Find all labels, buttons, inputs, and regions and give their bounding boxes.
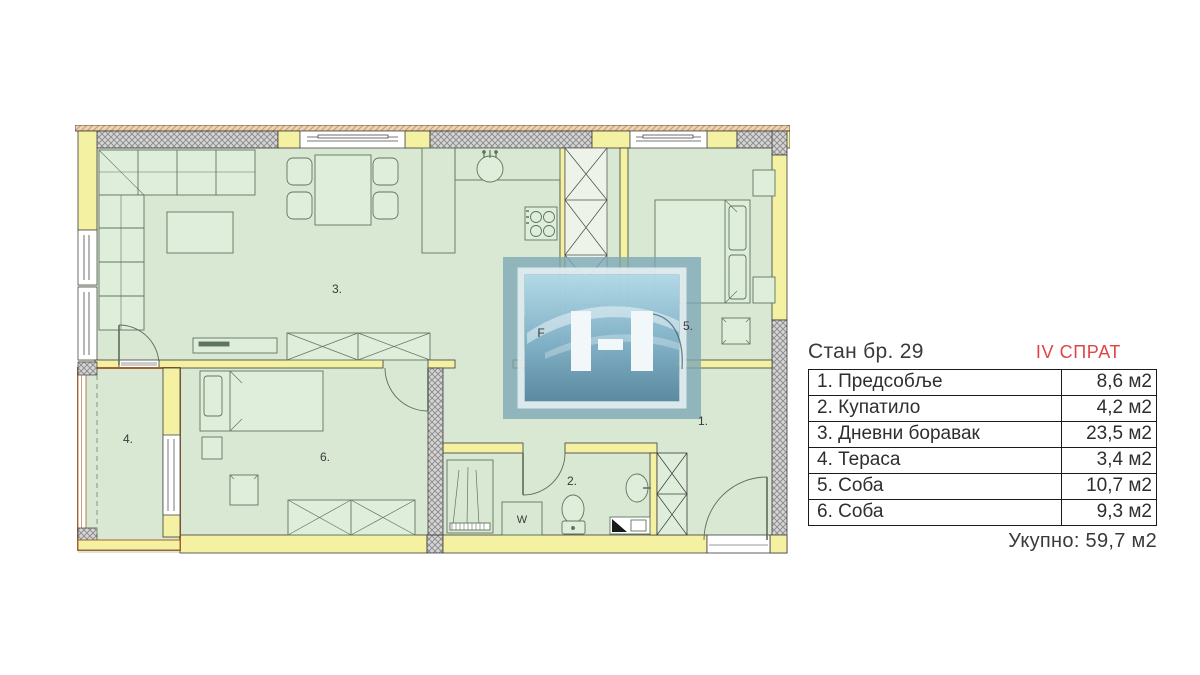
agency-watermark bbox=[503, 257, 701, 419]
floor-label: IV СПРАТ bbox=[1036, 342, 1121, 363]
label-washer: W bbox=[517, 514, 528, 526]
flyer-page: 3. 4. 5. 6. 1. 2. F W Стан бр. 29 IV СПР… bbox=[0, 0, 1200, 675]
hallway-wardrobe bbox=[657, 453, 687, 535]
room-area-cell: 9,3 м2 bbox=[1062, 500, 1157, 526]
label-terrace: 4. bbox=[123, 432, 133, 446]
room-area-cell: 8,6 м2 bbox=[1062, 370, 1157, 396]
label-fridge: F bbox=[537, 326, 544, 340]
toilet-icon bbox=[562, 495, 585, 534]
panel-header: Стан бр. 29 IV СПРАТ bbox=[808, 340, 1157, 367]
room-area-cell: 3,4 м2 bbox=[1062, 448, 1157, 474]
total-area: Укупно: 59,7 м2 bbox=[808, 530, 1157, 553]
label-living-room: 3. bbox=[332, 282, 342, 296]
floor-plan-svg: 3. 4. 5. 6. 1. 2. F W bbox=[75, 125, 790, 560]
table-row: 3. Дневни боравак 23,5 м2 bbox=[809, 422, 1157, 448]
boiler-icon bbox=[610, 517, 650, 534]
room-name-cell: 3. Дневни боравак bbox=[809, 422, 1062, 448]
apartment-title: Стан бр. 29 bbox=[808, 340, 924, 364]
label-bedroom-5: 5. bbox=[683, 319, 693, 333]
room-area-cell: 23,5 м2 bbox=[1062, 422, 1157, 448]
table-row: 6. Соба 9,3 м2 bbox=[809, 500, 1157, 526]
stove-icon bbox=[525, 207, 557, 240]
room-name-cell: 5. Соба bbox=[809, 474, 1062, 500]
label-hallway: 1. bbox=[698, 414, 708, 428]
room-area-cell: 10,7 м2 bbox=[1062, 474, 1157, 500]
room-area-table: 1. Предсобље 8,6 м2 2. Купатило 4,2 м2 3… bbox=[808, 369, 1157, 526]
table-row: 5. Соба 10,7 м2 bbox=[809, 474, 1157, 500]
label-bathroom: 2. bbox=[567, 474, 577, 488]
room-name-cell: 2. Купатило bbox=[809, 396, 1062, 422]
room-name-cell: 1. Предсобље bbox=[809, 370, 1062, 396]
room-area-cell: 4,2 м2 bbox=[1062, 396, 1157, 422]
floor-plan: 3. 4. 5. 6. 1. 2. F W bbox=[75, 125, 790, 560]
room-name-cell: 6. Соба bbox=[809, 500, 1062, 526]
label-bedroom-6: 6. bbox=[320, 450, 330, 464]
table-row: 4. Тераса 3,4 м2 bbox=[809, 448, 1157, 474]
apartment-info-panel: Стан бр. 29 IV СПРАТ 1. Предсобље 8,6 м2… bbox=[808, 340, 1157, 553]
room-name-cell: 4. Тераса bbox=[809, 448, 1062, 474]
table-row: 2. Купатило 4,2 м2 bbox=[809, 396, 1157, 422]
table-row: 1. Предсобље 8,6 м2 bbox=[809, 370, 1157, 396]
